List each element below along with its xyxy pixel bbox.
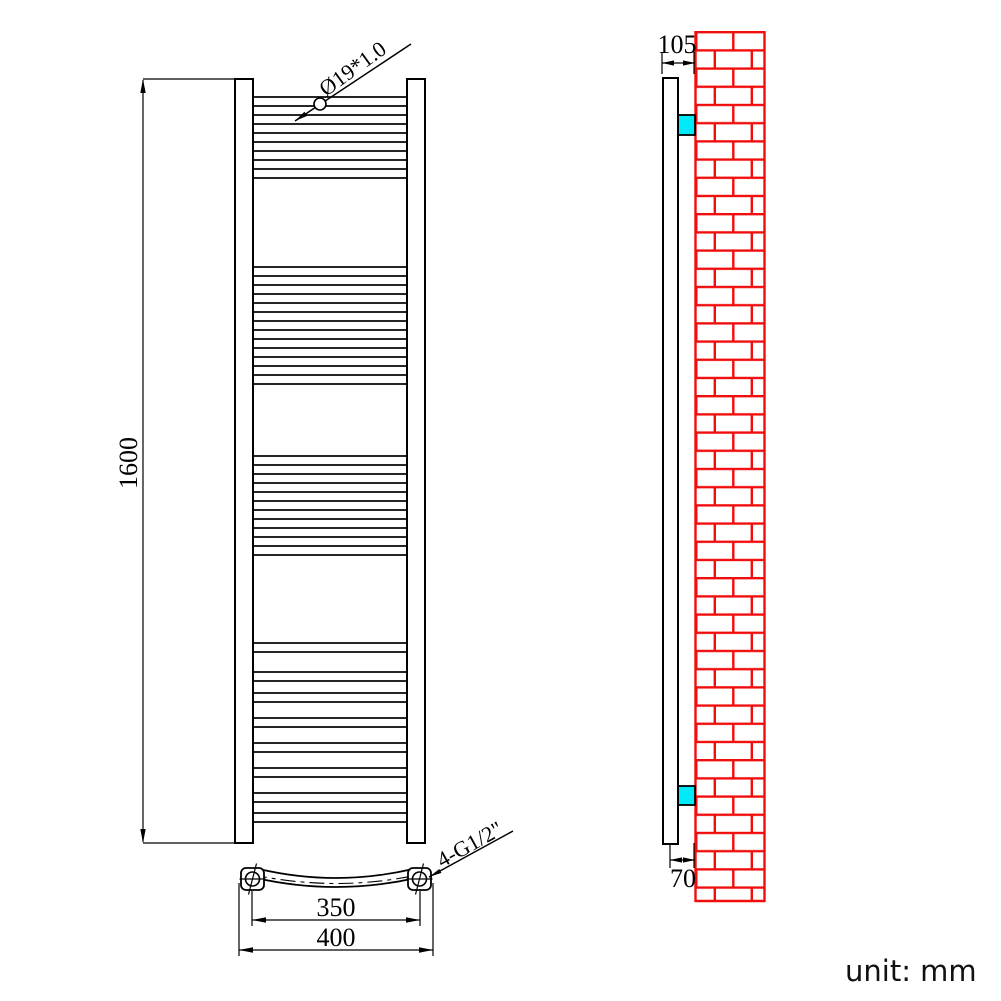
dim-arrow-down — [140, 829, 145, 843]
radiator-rung — [252, 133, 408, 142]
radiator-rung — [252, 169, 408, 178]
connection-spec-text: 4-G1/2" — [432, 816, 506, 872]
tube-spec-leader: Ø19*1.0 — [295, 36, 411, 121]
radiator-rung — [252, 793, 408, 802]
brick-pattern-area — [695, 31, 765, 902]
radiator-rung — [252, 375, 408, 384]
radiator-rung — [252, 285, 408, 294]
radiator-rung — [252, 672, 408, 681]
radiator-side-profile — [663, 78, 678, 844]
left-vertical-tube — [235, 79, 253, 843]
radiator-rung — [252, 643, 408, 652]
radiator-rung — [252, 813, 408, 822]
connection-spec-leader: 4-G1/2" — [429, 816, 513, 877]
tube-spot-marker — [314, 98, 326, 110]
radiator-rung — [252, 321, 408, 330]
radiator-rung — [252, 743, 408, 752]
radiator-rung — [252, 768, 408, 777]
front-view: 1600 Ø19*1.0 — [114, 36, 425, 843]
rail-curve-top-edge — [259, 869, 413, 878]
radiator-rung — [252, 115, 408, 124]
wall-offset-bottom-text: 70 — [670, 864, 696, 893]
height-dim-text: 1600 — [114, 437, 143, 489]
radiator-rung — [252, 456, 408, 465]
unit-note: unit: mm — [845, 954, 977, 988]
radiator-rung — [252, 303, 408, 312]
wall-offset-top-text: 105 — [658, 30, 697, 59]
right-vertical-tube — [407, 79, 425, 843]
radiator-rung — [252, 693, 408, 702]
tube-spec-text: Ø19*1.0 — [314, 36, 390, 101]
rail-curve-bottom-edge — [256, 878, 416, 887]
radiator-rung — [252, 718, 408, 727]
bottom-view: 4-G1/2" 350 400 — [239, 816, 513, 956]
center-distance-text: 350 — [317, 893, 356, 922]
height-dimension: 1600 — [114, 79, 236, 843]
overall-width-text: 400 — [317, 923, 356, 952]
top-wall-bracket — [678, 115, 695, 135]
wall-offset-bottom-dimension: 70 — [670, 843, 696, 893]
radiator-rung — [252, 492, 408, 501]
towel-radiator-technical-drawing: 1600 Ø19*1.0 — [0, 0, 1001, 1001]
rung-group — [252, 97, 408, 822]
dim-arrow-up — [140, 79, 145, 93]
left-fitting — [240, 864, 266, 895]
radiator-rung — [252, 510, 408, 519]
drawing-canvas: 1600 Ø19*1.0 — [0, 0, 1001, 1001]
wall-offset-top-dimension: 105 — [658, 30, 697, 74]
center-distance-dimension: 350 — [252, 891, 420, 926]
radiator-rung — [252, 474, 408, 483]
right-fitting — [407, 864, 433, 895]
radiator-rung — [252, 528, 408, 537]
side-view: 105 70 — [658, 30, 766, 902]
radiator-rung — [252, 267, 408, 276]
radiator-rung — [252, 357, 408, 366]
brick-wall — [695, 31, 765, 902]
radiator-rung — [252, 339, 408, 348]
radiator-rung — [252, 151, 408, 160]
radiator-rung — [252, 546, 408, 555]
bottom-wall-bracket — [678, 786, 695, 805]
